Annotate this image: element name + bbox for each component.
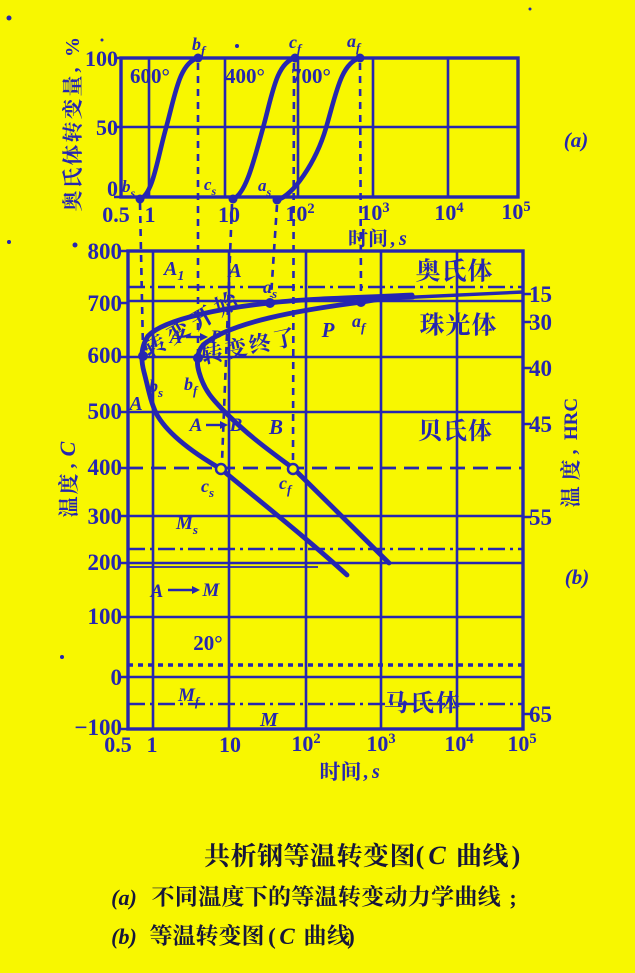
svg-text:0.5: 0.5 xyxy=(104,732,132,757)
svg-text:40: 40 xyxy=(529,356,552,381)
svg-text:C: C xyxy=(279,924,295,949)
svg-text:30: 30 xyxy=(529,310,552,335)
svg-text:M: M xyxy=(202,580,221,601)
svg-text:,: , xyxy=(559,450,581,455)
svg-text:1: 1 xyxy=(147,732,158,757)
svg-text:P: P xyxy=(209,327,222,348)
svg-text:10: 10 xyxy=(219,732,241,757)
svg-text:C: C xyxy=(428,841,446,870)
svg-text:A: A xyxy=(226,260,241,282)
svg-text:): ) xyxy=(347,924,355,949)
svg-text:200: 200 xyxy=(88,550,123,575)
svg-text:0: 0 xyxy=(107,176,118,201)
svg-text:700: 700 xyxy=(88,291,123,316)
svg-text:50: 50 xyxy=(96,115,118,140)
svg-text:500: 500 xyxy=(88,399,123,424)
svg-text:600°: 600° xyxy=(130,64,170,88)
svg-text:55: 55 xyxy=(529,505,552,530)
svg-text:): ) xyxy=(512,841,521,870)
svg-text:HRC: HRC xyxy=(561,398,582,440)
svg-text:B: B xyxy=(229,415,243,436)
svg-text:;: ; xyxy=(509,885,516,910)
svg-text:,: , xyxy=(61,68,83,73)
svg-text:(b): (b) xyxy=(565,565,590,589)
svg-text:1: 1 xyxy=(145,202,156,227)
svg-text:15: 15 xyxy=(529,282,552,307)
svg-text:400°: 400° xyxy=(225,64,265,88)
svg-text:A: A xyxy=(150,581,164,602)
svg-text:300: 300 xyxy=(88,504,123,529)
svg-text:s: s xyxy=(398,228,407,250)
svg-text:,: , xyxy=(57,464,79,469)
svg-text:700°: 700° xyxy=(291,64,331,88)
svg-text:(a): (a) xyxy=(111,885,137,910)
svg-text:A: A xyxy=(127,393,142,415)
svg-text:10: 10 xyxy=(218,202,240,227)
svg-text:(b): (b) xyxy=(111,924,137,949)
svg-text:45: 45 xyxy=(529,412,552,437)
svg-text:%: % xyxy=(62,37,84,57)
svg-text:65: 65 xyxy=(529,702,552,727)
svg-text:,: , xyxy=(390,228,395,250)
svg-text:(: ( xyxy=(268,924,276,949)
svg-text:P: P xyxy=(321,318,335,342)
svg-text:s: s xyxy=(371,761,380,783)
svg-text:0: 0 xyxy=(111,665,123,690)
svg-text:100: 100 xyxy=(85,46,118,71)
svg-text:(a): (a) xyxy=(564,128,589,152)
svg-text:,: , xyxy=(363,761,368,783)
svg-text:400: 400 xyxy=(88,455,123,480)
svg-text:M: M xyxy=(259,709,279,731)
svg-text:800: 800 xyxy=(88,239,123,264)
svg-text:20°: 20° xyxy=(193,631,222,655)
svg-text:(: ( xyxy=(416,841,425,870)
svg-text:A: A xyxy=(189,415,203,436)
svg-text:600: 600 xyxy=(88,343,123,368)
svg-text:C: C xyxy=(55,441,80,456)
svg-text:A: A xyxy=(169,327,183,348)
svg-text:B: B xyxy=(268,415,283,439)
svg-text:100: 100 xyxy=(88,604,123,629)
svg-text:0.5: 0.5 xyxy=(102,202,130,227)
